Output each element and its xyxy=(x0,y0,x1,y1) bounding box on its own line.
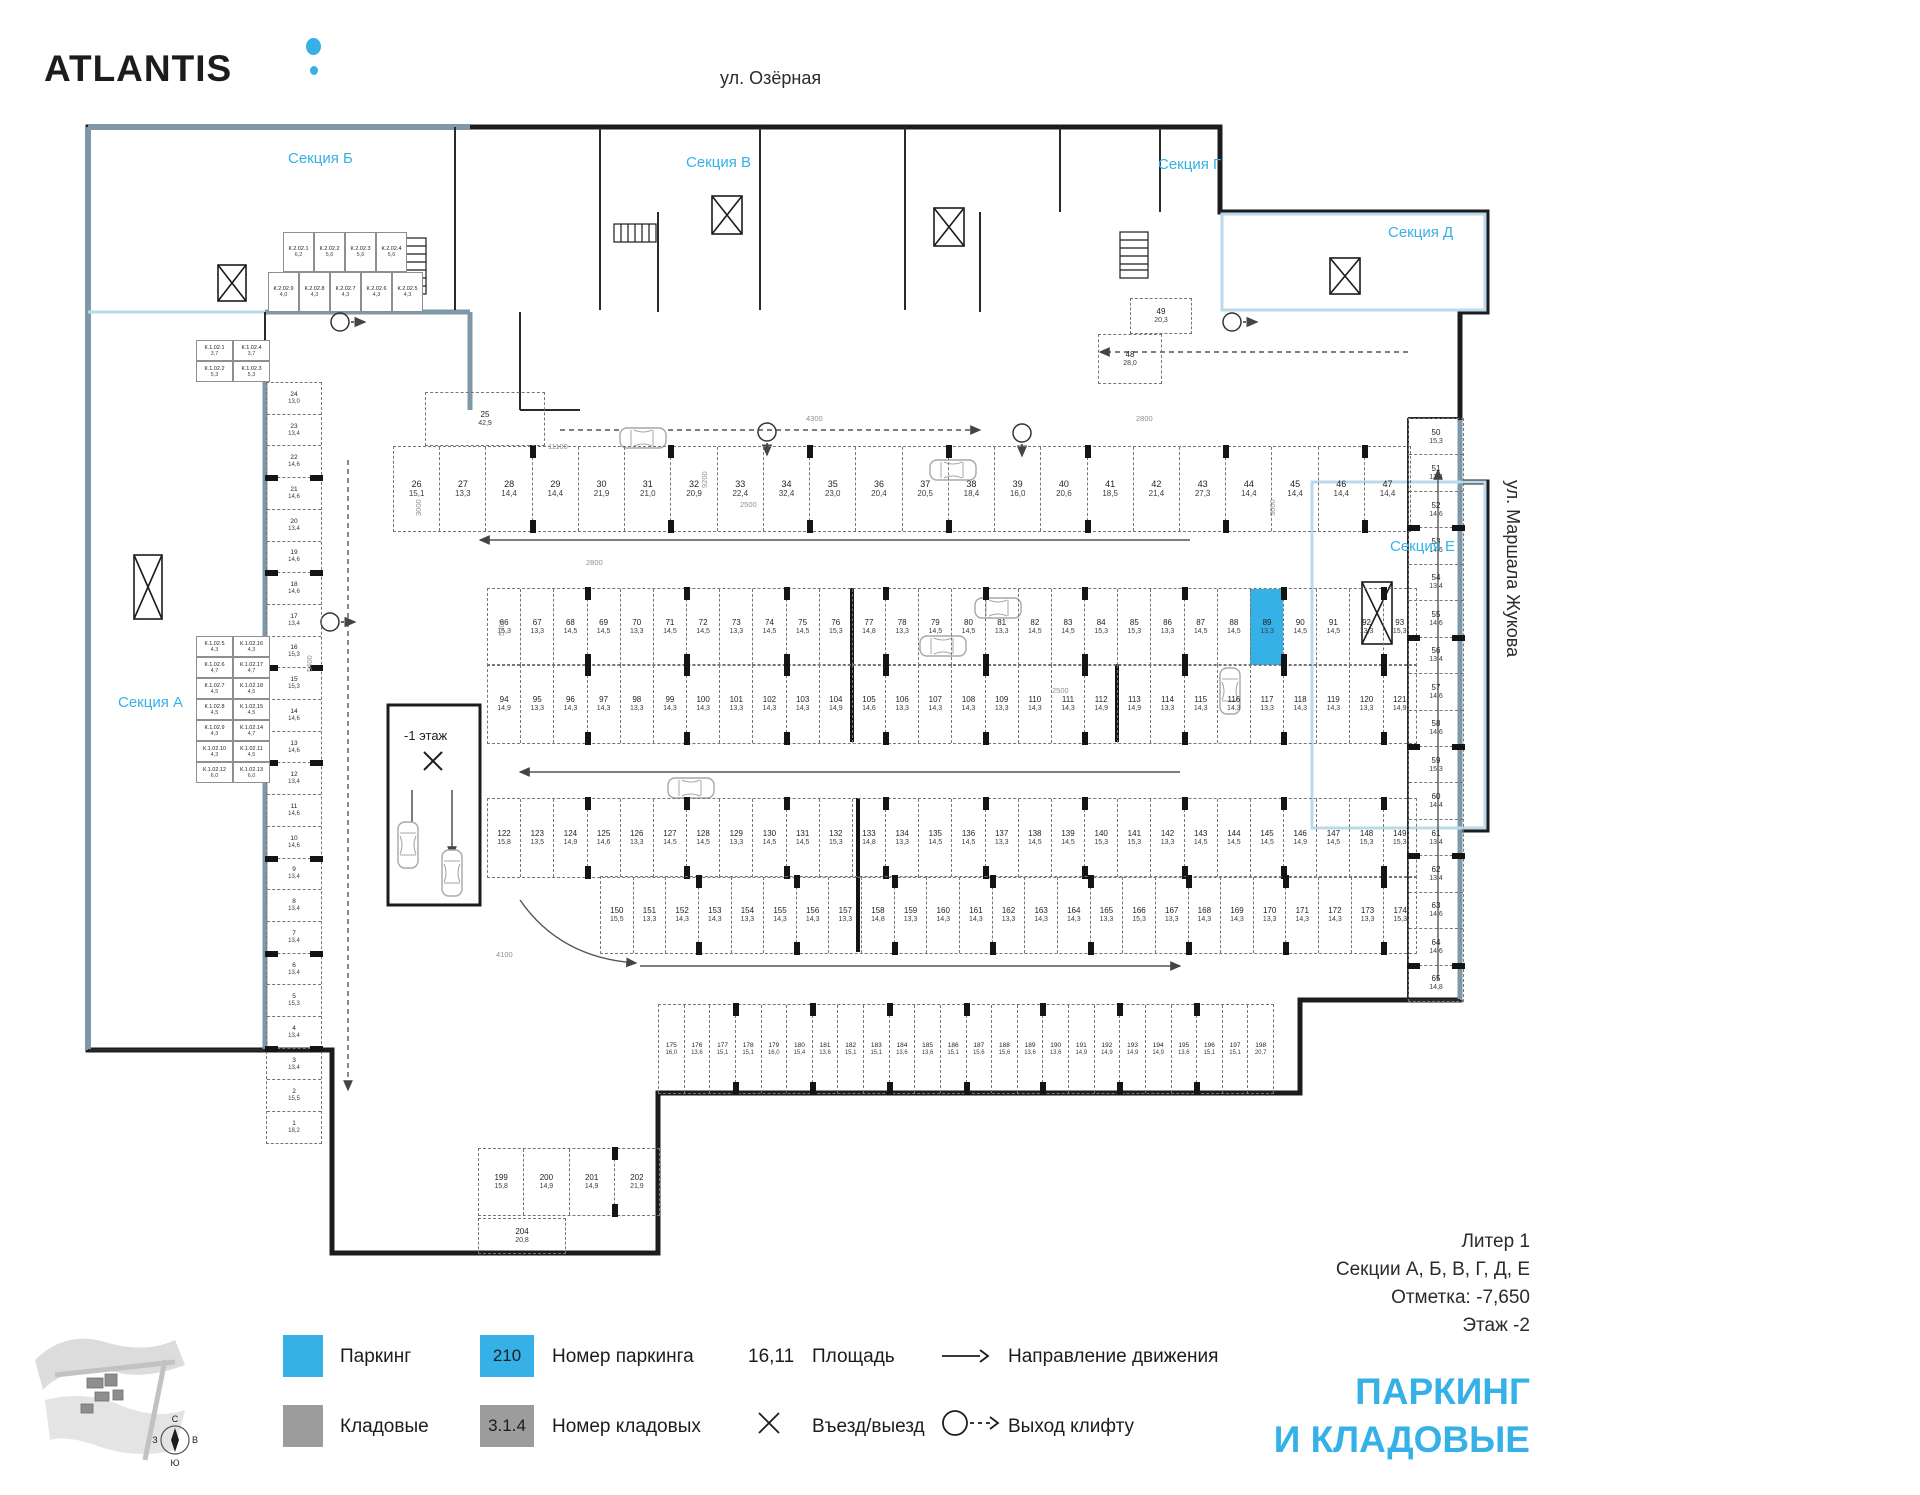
parking-stall-50[interactable]: 5015,3 xyxy=(1409,419,1463,454)
storage-group-left-2: К.1.02.54,3К.1.02.164,3К.1.02.64,7К.1.02… xyxy=(196,636,272,783)
parking-stall-125[interactable]: 12514,6 xyxy=(587,799,620,877)
parking-stall-45[interactable]: 4514,4 xyxy=(1271,447,1317,531)
dimension-label: 4100 xyxy=(496,950,513,959)
location-minimap: С В Ю З xyxy=(25,1320,245,1485)
parking-stall-182[interactable]: 18215,1 xyxy=(837,1005,863,1093)
entry-exit-icon xyxy=(756,1410,782,1436)
parking-stall-23[interactable]: 2313,4 xyxy=(267,414,321,446)
legend-parking-number-sample: 210 xyxy=(480,1335,534,1377)
parking-stall-13[interactable]: 1314,6 xyxy=(267,731,321,763)
storage-cell-К.2.02.3[interactable]: К.2.02.35,6 xyxy=(345,232,376,272)
dimension-label: 5400 xyxy=(305,655,314,672)
parking-stall-9[interactable]: 913,4 xyxy=(267,858,321,890)
parking-stall-91[interactable]: 9114,5 xyxy=(1316,589,1349,665)
parking-stall-95[interactable]: 9513,3 xyxy=(520,665,553,743)
dimension-label: 2800 xyxy=(586,558,603,567)
parking-stall-167[interactable]: 16713,3 xyxy=(1155,877,1188,953)
storage-cell-К.1.02.17[interactable]: К.1.02.174,7 xyxy=(233,657,270,678)
parking-stall-5[interactable]: 515,3 xyxy=(267,984,321,1016)
parking-stall-59[interactable]: 5915,3 xyxy=(1409,746,1463,782)
parking-stall-113[interactable]: 11314,9 xyxy=(1117,665,1150,743)
parking-stall-130[interactable]: 13014,5 xyxy=(752,799,785,877)
storage-cell-К.1.02.15[interactable]: К.1.02.154,5 xyxy=(233,699,270,720)
parking-stall-68[interactable]: 6814,5 xyxy=(553,589,586,665)
legend-lift-label: Выход клифту xyxy=(1008,1416,1134,1438)
legend-area-label: Площадь xyxy=(812,1346,895,1368)
parking-stall-8[interactable]: 813,4 xyxy=(267,889,321,921)
parking-stall-172[interactable]: 17214,3 xyxy=(1318,877,1351,953)
parking-stall-60[interactable]: 6014,4 xyxy=(1409,782,1463,818)
parking-stall-6[interactable]: 613,4 xyxy=(267,953,321,985)
parking-stall-48[interactable]: 4828,0 xyxy=(1098,334,1162,384)
parking-stall-15[interactable]: 1515,3 xyxy=(267,667,321,699)
parking-stall-25[interactable]: 2542,9 xyxy=(425,392,545,446)
parking-stall-157[interactable]: 15713,3 xyxy=(828,877,861,953)
parking-stall-151[interactable]: 15113,3 xyxy=(633,877,666,953)
parking-stall-86[interactable]: 8613,3 xyxy=(1150,589,1183,665)
parking-stall-193[interactable]: 19314,9 xyxy=(1119,1005,1145,1093)
storage-cell-К.2.02.4[interactable]: К.2.02.45,6 xyxy=(376,232,407,272)
section-label-b: Секция Б xyxy=(288,150,353,167)
storage-cell-К.1.02.1[interactable]: К.1.02.13,7 xyxy=(196,340,233,361)
parking-stall-144[interactable]: 14414,5 xyxy=(1217,799,1250,877)
parking-stall-32[interactable]: 3220,9 xyxy=(670,447,716,531)
parking-stall-56[interactable]: 5613,4 xyxy=(1409,637,1463,673)
stairs-icon xyxy=(614,224,656,242)
parking-stall-87[interactable]: 8714,5 xyxy=(1184,589,1217,665)
section-label-g: Секция Г xyxy=(1158,156,1221,173)
parking-stall-55[interactable]: 5514,6 xyxy=(1409,600,1463,636)
parking-stall-155[interactable]: 15514,3 xyxy=(763,877,796,953)
storage-cell-К.1.02.6[interactable]: К.1.02.64,7 xyxy=(196,657,233,678)
parking-stall-107[interactable]: 10714,3 xyxy=(918,665,951,743)
parking-stall-7[interactable]: 713,4 xyxy=(267,921,321,953)
storage-cell-К.1.02.4[interactable]: К.1.02.43,7 xyxy=(233,340,270,361)
svg-text:В: В xyxy=(192,1435,198,1445)
dimension-label: 5300 xyxy=(497,619,506,636)
parking-stall-164[interactable]: 16414,3 xyxy=(1057,877,1090,953)
dimension-label: 3000 xyxy=(414,499,423,516)
parking-stall-136[interactable]: 13614,5 xyxy=(951,799,984,877)
parking-stall-77[interactable]: 7714,8 xyxy=(852,589,885,665)
elevator-icon xyxy=(1330,258,1360,294)
storage-group-top-2: К.2.02.94,0К.2.02.84,3К.2.02.74,3К.2.02.… xyxy=(268,272,426,312)
parking-stall-153[interactable]: 15314,3 xyxy=(698,877,731,953)
parking-stall-127[interactable]: 12714,5 xyxy=(653,799,686,877)
parking-stall-57[interactable]: 5714,6 xyxy=(1409,673,1463,709)
section-label-v: Секция В xyxy=(686,154,751,171)
parking-stall-154[interactable]: 15413,3 xyxy=(731,877,764,953)
parking-stall-165[interactable]: 16513,3 xyxy=(1090,877,1123,953)
parking-stall-134[interactable]: 13413,3 xyxy=(885,799,918,877)
parking-stall-135[interactable]: 13514,5 xyxy=(918,799,951,877)
parking-stall-200[interactable]: 20014,9 xyxy=(523,1149,568,1215)
parking-stall-78[interactable]: 7813,3 xyxy=(885,589,918,665)
parking-stall-83[interactable]: 8314,5 xyxy=(1051,589,1084,665)
dimension-label: 9200 xyxy=(700,471,709,488)
parking-stall-147[interactable]: 14714,5 xyxy=(1316,799,1349,877)
dimension-label: 2500 xyxy=(740,500,757,509)
parking-stall-124[interactable]: 12414,9 xyxy=(553,799,586,877)
storage-cell-К.2.02.7[interactable]: К.2.02.74,3 xyxy=(330,272,361,312)
legend-storage-number-sample: 3.1.4 xyxy=(480,1405,534,1447)
parking-stall-196[interactable]: 19615,1 xyxy=(1196,1005,1222,1093)
parking-stall-17[interactable]: 1713,4 xyxy=(267,604,321,636)
title-block: Литер 1 Секции А, Б, В, Г, Д, Е Отметка:… xyxy=(1150,1228,1530,1340)
parking-stall-104[interactable]: 10414,9 xyxy=(819,665,852,743)
parking-stall-36[interactable]: 3620,4 xyxy=(855,447,901,531)
parking-stall-122[interactable]: 12215,8 xyxy=(488,799,520,877)
storage-cell-К.1.02.14[interactable]: К.1.02.144,7 xyxy=(233,720,270,741)
elevator-icon xyxy=(712,196,742,234)
storage-cell-К.1.02.2[interactable]: К.1.02.25,3 xyxy=(196,361,233,382)
parking-stall-186[interactable]: 18615,1 xyxy=(940,1005,966,1093)
parking-stall-189[interactable]: 18913,6 xyxy=(1017,1005,1043,1093)
storage-cell-К.1.02.11[interactable]: К.1.02.114,5 xyxy=(233,741,270,762)
parking-row-122-149: 12215,812313,512414,912514,612613,312714… xyxy=(487,798,1417,878)
parking-stall-183[interactable]: 18315,1 xyxy=(863,1005,889,1093)
section-label-e: Секция Е xyxy=(1390,538,1455,555)
parking-stall-110[interactable]: 11014,3 xyxy=(1018,665,1051,743)
parking-stall-69[interactable]: 6914,5 xyxy=(587,589,620,665)
parking-stall-82[interactable]: 8214,5 xyxy=(1018,589,1051,665)
parking-stall-202[interactable]: 20221,9 xyxy=(614,1149,659,1215)
parking-stall-21[interactable]: 2114,6 xyxy=(267,477,321,509)
storage-cell-К.1.02.9[interactable]: К.1.02.94,3 xyxy=(196,720,233,741)
svg-text:Ю: Ю xyxy=(170,1458,179,1468)
parking-stall-119[interactable]: 11914,3 xyxy=(1316,665,1349,743)
parking-stall-198[interactable]: 19820,7 xyxy=(1247,1005,1273,1093)
parking-stall-37[interactable]: 3720,5 xyxy=(902,447,948,531)
parking-stall-63[interactable]: 6314,6 xyxy=(1409,892,1463,928)
parking-stall-191[interactable]: 19114,9 xyxy=(1068,1005,1094,1093)
parking-stall-139[interactable]: 13914,5 xyxy=(1051,799,1084,877)
parking-stall-97[interactable]: 9714,3 xyxy=(587,665,620,743)
parking-stall-28[interactable]: 2814,4 xyxy=(485,447,531,531)
parking-stall-126[interactable]: 12613,3 xyxy=(620,799,653,877)
parking-stall-158[interactable]: 15814,8 xyxy=(861,877,894,953)
storage-cell-К.1.02.10[interactable]: К.1.02.104,3 xyxy=(196,741,233,762)
parking-stall-10[interactable]: 1014,6 xyxy=(267,826,321,858)
parking-stall-47[interactable]: 4714,4 xyxy=(1364,447,1410,531)
storage-group-top-1: К.2.02.16,2К.2.02.25,6К.2.02.35,6К.2.02.… xyxy=(283,232,409,272)
parking-stall-88[interactable]: 8814,5 xyxy=(1217,589,1250,665)
title-elevation: Отметка: -7,650 xyxy=(1150,1284,1530,1312)
section-label-d: Секция Д xyxy=(1388,224,1453,241)
parking-stall-89[interactable]: 8913,3 xyxy=(1250,589,1283,665)
parking-stall-72[interactable]: 7214,5 xyxy=(686,589,719,665)
parking-stall-150[interactable]: 15015,5 xyxy=(601,877,633,953)
parking-stall-117[interactable]: 11713,3 xyxy=(1250,665,1283,743)
parking-stall-84[interactable]: 8415,3 xyxy=(1084,589,1117,665)
parking-stall-120[interactable]: 12013,3 xyxy=(1349,665,1382,743)
parking-row-26-47: 2615,12713,32814,42914,43021,93121,03220… xyxy=(393,446,1411,532)
parking-stall-39[interactable]: 3916,0 xyxy=(994,447,1040,531)
parking-stall-20[interactable]: 2013,4 xyxy=(267,509,321,541)
dimension-label: 2500 xyxy=(1052,686,1069,695)
ramp-level-label: -1 этаж xyxy=(404,728,447,743)
parking-stall-75[interactable]: 7514,5 xyxy=(786,589,819,665)
parking-stall-159[interactable]: 15913,3 xyxy=(894,877,927,953)
storage-group-left-1: К.1.02.13,7К.1.02.43,7К.1.02.25,3К.1.02.… xyxy=(196,340,272,382)
parking-stall-146[interactable]: 14614,9 xyxy=(1283,799,1316,877)
parking-row-94-121: 9414,99513,39614,39714,39813,39914,31001… xyxy=(487,664,1417,744)
parking-stall-24[interactable]: 2413,0 xyxy=(267,383,321,414)
elevator-icon xyxy=(134,555,162,619)
parking-stall-96[interactable]: 9614,3 xyxy=(553,665,586,743)
parking-stall-43[interactable]: 4327,3 xyxy=(1179,447,1225,531)
parking-row-66-93: 6615,36713,36814,56914,57013,37114,57214… xyxy=(487,588,1417,666)
parking-stall-175[interactable]: 17516,0 xyxy=(659,1005,684,1093)
parking-stall-199[interactable]: 19915,8 xyxy=(479,1149,523,1215)
lift-exit-legend-icon xyxy=(940,1408,1006,1438)
parking-stall-145[interactable]: 14514,5 xyxy=(1250,799,1283,877)
elevator-icon xyxy=(218,265,246,301)
parking-stall-100[interactable]: 10014,3 xyxy=(686,665,719,743)
parking-stall-114[interactable]: 11413,3 xyxy=(1150,665,1183,743)
parking-row-150-174: 15015,515113,315214,315314,315413,315514… xyxy=(600,876,1417,954)
parking-stall-176[interactable]: 17613,6 xyxy=(684,1005,710,1093)
parking-stall-61[interactable]: 6113,4 xyxy=(1409,819,1463,855)
parking-stall-30[interactable]: 3021,9 xyxy=(578,447,624,531)
parking-stall-49[interactable]: 4920,3 xyxy=(1130,298,1192,334)
parking-stall-71[interactable]: 7114,5 xyxy=(653,589,686,665)
parking-stall-2[interactable]: 215,5 xyxy=(267,1079,321,1111)
dimension-label: 11100 xyxy=(548,442,568,451)
parking-stall-187[interactable]: 18715,6 xyxy=(966,1005,992,1093)
title-sections: Секции А, Б, В, Г, Д, Е xyxy=(1150,1256,1530,1284)
legend-parking-label: Паркинг xyxy=(340,1346,411,1368)
page-title: ПАРКИНГ И КЛАДОВЫЕ xyxy=(1150,1368,1530,1464)
parking-stall-40[interactable]: 4020,6 xyxy=(1040,447,1086,531)
parking-stall-76[interactable]: 7615,3 xyxy=(819,589,852,665)
parking-stall-34[interactable]: 3432,4 xyxy=(763,447,809,531)
legend-storage-label: Кладовые xyxy=(340,1416,429,1438)
parking-stall-80[interactable]: 8014,5 xyxy=(951,589,984,665)
parking-stall-109[interactable]: 10913,3 xyxy=(985,665,1018,743)
parking-stall-3[interactable]: 313,4 xyxy=(267,1048,321,1080)
parking-stall-42[interactable]: 4221,4 xyxy=(1133,447,1179,531)
parking-stall-194[interactable]: 19414,9 xyxy=(1145,1005,1171,1093)
legend-parking-number-label: Номер паркинга xyxy=(552,1346,694,1368)
dimension-label: 2800 xyxy=(1136,414,1153,423)
parking-stall-195[interactable]: 19513,6 xyxy=(1171,1005,1197,1093)
storage-cell-К.2.02.2[interactable]: К.2.02.25,6 xyxy=(314,232,345,272)
storage-cell-К.1.02.8[interactable]: К.1.02.84,5 xyxy=(196,699,233,720)
storage-cell-К.1.02.16[interactable]: К.1.02.164,3 xyxy=(233,636,270,657)
parking-stall-118[interactable]: 11814,3 xyxy=(1283,665,1316,743)
parking-stall-81[interactable]: 8113,3 xyxy=(985,589,1018,665)
legend-direction-label: Направление движения xyxy=(1008,1346,1218,1368)
section-label-a: Секция А xyxy=(118,694,183,711)
parking-stall-115[interactable]: 11514,3 xyxy=(1184,665,1217,743)
parking-stall-1[interactable]: 118,2 xyxy=(267,1111,321,1143)
parking-stall-18[interactable]: 1814,6 xyxy=(267,572,321,604)
parking-stall-132[interactable]: 13215,3 xyxy=(819,799,852,877)
parking-stall-111[interactable]: 11114,3 xyxy=(1051,665,1084,743)
parking-stall-116[interactable]: 11614,3 xyxy=(1217,665,1250,743)
parking-stall-129[interactable]: 12913,3 xyxy=(719,799,752,877)
parking-stall-201[interactable]: 20114,9 xyxy=(569,1149,614,1215)
parking-stall-197[interactable]: 19715,1 xyxy=(1222,1005,1248,1093)
parking-row-199-202: 19915,820014,920114,920221,9 xyxy=(478,1148,660,1216)
parking-stall-173[interactable]: 17313,3 xyxy=(1351,877,1384,953)
parking-stall-177[interactable]: 17715,1 xyxy=(709,1005,735,1093)
parking-stall-163[interactable]: 16314,3 xyxy=(1024,877,1057,953)
storage-cell-К.1.02.5[interactable]: К.1.02.54,3 xyxy=(196,636,233,657)
parking-stall-22[interactable]: 2214,6 xyxy=(267,445,321,477)
parking-stall-141[interactable]: 14115,3 xyxy=(1117,799,1150,877)
parking-stall-64[interactable]: 6414,6 xyxy=(1409,928,1463,964)
parking-stall-162[interactable]: 16213,3 xyxy=(992,877,1025,953)
parking-stall-161[interactable]: 16114,3 xyxy=(959,877,992,953)
parking-stall-31[interactable]: 3121,0 xyxy=(624,447,670,531)
parking-stall-41[interactable]: 4118,5 xyxy=(1087,447,1133,531)
legend-storage-swatch xyxy=(283,1405,323,1447)
parking-stall-29[interactable]: 2914,4 xyxy=(532,447,578,531)
storage-cell-К.2.02.9[interactable]: К.2.02.94,0 xyxy=(268,272,299,312)
parking-stall-4[interactable]: 413,4 xyxy=(267,1016,321,1048)
parking-stall-184[interactable]: 18413,6 xyxy=(889,1005,915,1093)
parking-stall-74[interactable]: 7414,5 xyxy=(752,589,785,665)
parking-stall-70[interactable]: 7013,3 xyxy=(620,589,653,665)
parking-stall-112[interactable]: 11214,9 xyxy=(1084,665,1117,743)
parking-stall-79[interactable]: 7914,5 xyxy=(918,589,951,665)
storage-cell-К.2.02.6[interactable]: К.2.02.64,3 xyxy=(361,272,392,312)
storage-cell-К.1.02.13[interactable]: К.1.02.136,0 xyxy=(233,762,270,783)
parking-column-1-24: 2413,02313,42214,62114,62013,41914,61814… xyxy=(266,382,322,1144)
parking-stall-133[interactable]: 13314,8 xyxy=(852,799,885,877)
parking-stall-35[interactable]: 3523,0 xyxy=(809,447,855,531)
dimension-label: 3000 xyxy=(1268,499,1277,516)
parking-stall-54[interactable]: 5413,4 xyxy=(1409,564,1463,600)
parking-stall-137[interactable]: 13713,3 xyxy=(985,799,1018,877)
parking-stall-170[interactable]: 17013,3 xyxy=(1253,877,1286,953)
parking-stall-67[interactable]: 6713,3 xyxy=(520,589,553,665)
parking-stall-27[interactable]: 2713,3 xyxy=(439,447,485,531)
storage-cell-К.1.02.12[interactable]: К.1.02.126,0 xyxy=(196,762,233,783)
legend-area-sample: 16,11 xyxy=(748,1346,794,1368)
parking-stall-180[interactable]: 18015,4 xyxy=(786,1005,812,1093)
parking-stall-46[interactable]: 4614,4 xyxy=(1318,447,1364,531)
storage-cell-К.1.02.7[interactable]: К.1.02.74,5 xyxy=(196,678,233,699)
parking-stall-99[interactable]: 9914,3 xyxy=(653,665,686,743)
parking-stall-33[interactable]: 3322,4 xyxy=(717,447,763,531)
parking-column-50-65: 5015,35113,45214,65314,65413,45514,65613… xyxy=(1408,418,1464,1002)
parking-stall-90[interactable]: 9014,5 xyxy=(1283,589,1316,665)
parking-stall-190[interactable]: 19013,6 xyxy=(1042,1005,1068,1093)
parking-stall-178[interactable]: 17815,1 xyxy=(735,1005,761,1093)
parking-stall-85[interactable]: 8515,3 xyxy=(1117,589,1150,665)
parking-stall-181[interactable]: 18113,6 xyxy=(812,1005,838,1093)
parking-stall-156[interactable]: 15614,3 xyxy=(796,877,829,953)
parking-stall-143[interactable]: 14314,5 xyxy=(1184,799,1217,877)
parking-stall-105[interactable]: 10514,6 xyxy=(852,665,885,743)
parking-stall-102[interactable]: 10214,3 xyxy=(752,665,785,743)
parking-stall-73[interactable]: 7313,3 xyxy=(719,589,752,665)
legend-storage-number-label: Номер кладовых xyxy=(552,1416,701,1438)
parking-stall-65[interactable]: 6514,8 xyxy=(1409,965,1463,1001)
parking-stall-152[interactable]: 15214,3 xyxy=(665,877,698,953)
parking-stall-98[interactable]: 9813,3 xyxy=(620,665,653,743)
parking-stall-140[interactable]: 14015,3 xyxy=(1084,799,1117,877)
parking-stall-19[interactable]: 1914,6 xyxy=(267,541,321,573)
parking-stall-58[interactable]: 5814,6 xyxy=(1409,710,1463,746)
title-floor: Этаж -2 xyxy=(1150,1312,1530,1340)
parking-stall-166[interactable]: 16615,3 xyxy=(1122,877,1155,953)
storage-cell-К.1.02.18[interactable]: К.1.02.184,5 xyxy=(233,678,270,699)
elevator-icon xyxy=(934,208,964,246)
parking-stall-44[interactable]: 4414,4 xyxy=(1225,447,1271,531)
parking-stall-160[interactable]: 16014,3 xyxy=(926,877,959,953)
stairs-icon xyxy=(1120,232,1148,278)
parking-stall-171[interactable]: 17114,3 xyxy=(1285,877,1318,953)
storage-cell-К.2.02.8[interactable]: К.2.02.84,3 xyxy=(299,272,330,312)
storage-cell-К.2.02.5[interactable]: К.2.02.54,3 xyxy=(392,272,423,312)
legend-parking-swatch xyxy=(283,1335,323,1377)
parking-stall-12[interactable]: 1213,4 xyxy=(267,762,321,794)
parking-stall-148[interactable]: 14815,3 xyxy=(1349,799,1382,877)
parking-stall-11[interactable]: 1114,6 xyxy=(267,794,321,826)
parking-stall-108[interactable]: 10814,3 xyxy=(951,665,984,743)
parking-stall-106[interactable]: 10613,3 xyxy=(885,665,918,743)
parking-row-175-198: 17516,017613,617715,117815,117916,018015… xyxy=(658,1004,1274,1094)
parking-stall-52[interactable]: 5214,6 xyxy=(1409,491,1463,527)
direction-arrow-icon xyxy=(940,1348,990,1364)
parking-stall-204[interactable]: 20420,8 xyxy=(478,1218,566,1254)
parking-stall-51[interactable]: 5113,4 xyxy=(1409,454,1463,490)
svg-text:С: С xyxy=(172,1414,179,1424)
parking-stall-142[interactable]: 14213,3 xyxy=(1150,799,1183,877)
parking-stall-38[interactable]: 3818,4 xyxy=(948,447,994,531)
parking-stall-14[interactable]: 1414,6 xyxy=(267,699,321,731)
parking-stall-128[interactable]: 12814,5 xyxy=(686,799,719,877)
storage-cell-К.1.02.3[interactable]: К.1.02.35,3 xyxy=(233,361,270,382)
storage-cell-К.2.02.1[interactable]: К.2.02.16,2 xyxy=(283,232,314,272)
parking-stall-26[interactable]: 2615,1 xyxy=(394,447,439,531)
parking-stall-185[interactable]: 18513,6 xyxy=(914,1005,940,1093)
parking-stall-188[interactable]: 18815,6 xyxy=(991,1005,1017,1093)
parking-stall-192[interactable]: 19214,9 xyxy=(1094,1005,1120,1093)
parking-stall-169[interactable]: 16914,3 xyxy=(1220,877,1253,953)
parking-stall-101[interactable]: 10113,3 xyxy=(719,665,752,743)
parking-stall-179[interactable]: 17916,0 xyxy=(761,1005,787,1093)
legend-entry-label: Въезд/выезд xyxy=(812,1416,925,1438)
parking-stall-103[interactable]: 10314,3 xyxy=(786,665,819,743)
parking-stall-94[interactable]: 9414,9 xyxy=(488,665,520,743)
parking-stall-168[interactable]: 16814,3 xyxy=(1188,877,1221,953)
parking-stall-131[interactable]: 13114,5 xyxy=(786,799,819,877)
svg-text:З: З xyxy=(152,1435,157,1445)
title-liter: Литер 1 xyxy=(1150,1228,1530,1256)
parking-stall-123[interactable]: 12313,5 xyxy=(520,799,553,877)
parking-stall-138[interactable]: 13814,5 xyxy=(1018,799,1051,877)
parking-stall-92[interactable]: 9213,3 xyxy=(1349,589,1382,665)
parking-stall-62[interactable]: 6213,4 xyxy=(1409,855,1463,891)
dimension-label: 4300 xyxy=(806,414,823,423)
